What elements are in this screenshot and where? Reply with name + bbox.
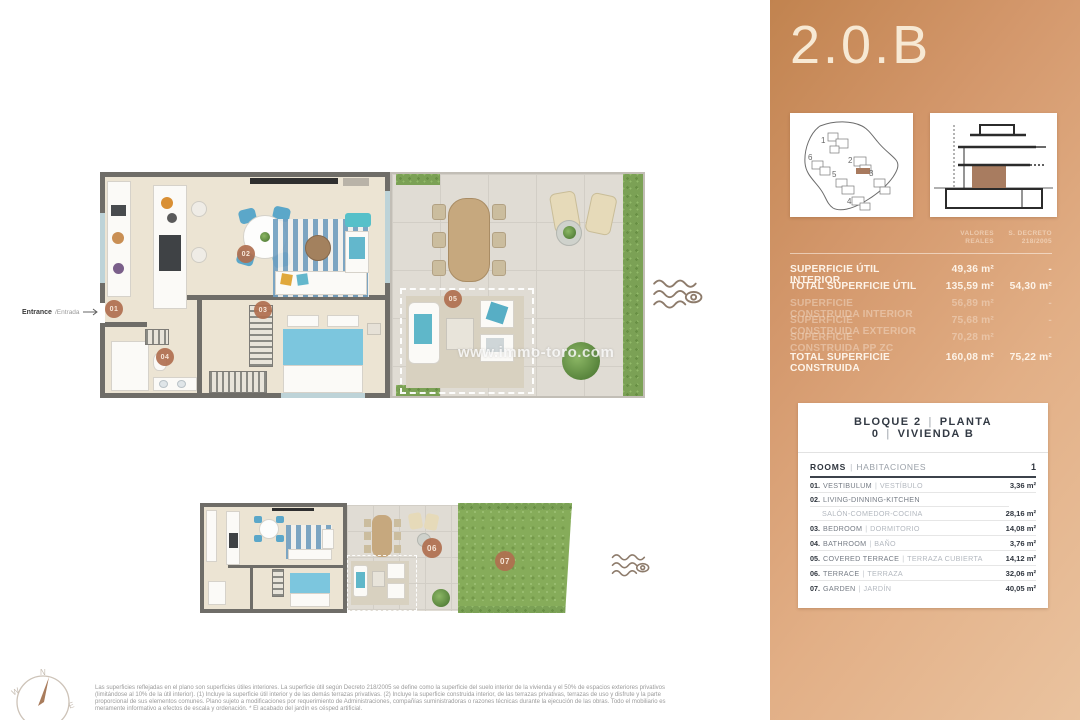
nightstand <box>367 323 381 335</box>
plate <box>191 247 207 263</box>
mini-armchair <box>387 563 405 579</box>
entrance-label-es: /Entrada <box>55 309 80 316</box>
col-header-valores: VALORESREALES <box>924 230 994 246</box>
site-block-number: 3 <box>869 169 874 178</box>
mini-chair <box>364 532 371 540</box>
mini-lounge <box>408 512 424 530</box>
bath-shelf <box>145 329 169 345</box>
sea-waves-icon <box>651 275 703 311</box>
shower <box>111 341 149 391</box>
table-row: 01.VESTIBULUM|VESTÍBULO3,36 m² <box>810 478 1036 493</box>
kitchen-item <box>112 232 124 244</box>
site-block-number: 1 <box>821 136 826 145</box>
bed-base <box>283 365 363 393</box>
site-block-number: 5 <box>832 170 837 179</box>
basin <box>159 380 168 388</box>
outdoor-chair <box>492 260 506 276</box>
entrance-label-en: Entrance <box>22 309 52 316</box>
table-row: 02.LIVING-DINNING-KITCHEN SALÓN-COMEDOR-… <box>810 493 1036 521</box>
divider <box>790 253 1052 254</box>
mini-chair-blue <box>276 516 284 523</box>
rooms-count: 1 <box>1031 462 1036 472</box>
table-centerpiece <box>260 232 270 242</box>
table-row: 05.COVERED TERRACE|TERRAZA CUBIERTA14,12… <box>810 551 1036 566</box>
mini-chair <box>394 545 401 553</box>
mini-coffee-table <box>372 571 385 587</box>
surface-table: VALORESREALES S. DECRETO218/2005 SUPERFI… <box>790 230 1052 369</box>
overview-interior <box>200 503 347 613</box>
sofa-pillow <box>296 273 308 285</box>
highlighted-block <box>856 168 870 174</box>
room-list-card: BLOQUE 2|PLANTA 0|VIVIENDA B ROOMS | HAB… <box>798 403 1048 608</box>
bowl <box>161 197 173 209</box>
wardrobe <box>209 371 267 393</box>
mini-cushion <box>356 572 365 588</box>
mini-chair <box>394 532 401 540</box>
outdoor-chair <box>492 232 506 248</box>
unit-location-header: BLOQUE 2|PLANTA 0|VIVIENDA B <box>810 416 1036 440</box>
outdoor-chair <box>492 204 506 220</box>
site-block-number: 4 <box>847 197 852 206</box>
mini-chair <box>364 519 371 527</box>
room-badge-05: 05 <box>444 290 462 308</box>
col-header-decreto: S. DECRETO218/2005 <box>994 230 1052 246</box>
bowl <box>167 213 177 223</box>
entrance-label: Entrance/Entrada <box>22 308 99 316</box>
watermark: www.immo-toro.com <box>458 344 614 361</box>
mini-kitchen <box>206 510 217 562</box>
overview-terrace <box>347 505 458 611</box>
wall <box>250 565 253 609</box>
room-badge-06: 06 <box>422 538 442 558</box>
info-sidebar: 2.0.B 1 2 <box>770 0 1080 720</box>
tv <box>250 178 338 184</box>
outdoor-chair <box>432 232 446 248</box>
lounge-chair <box>584 192 618 237</box>
apartment-interior <box>100 172 390 398</box>
mini-chair-blue <box>276 535 284 542</box>
legal-disclaimer: Las superficies reflejadas en el plano s… <box>95 685 695 713</box>
mini-lounge <box>423 513 439 531</box>
cooktop <box>159 235 181 271</box>
room-badge-03: 03 <box>254 301 272 319</box>
mini-armchair <box>387 583 405 599</box>
table-row: SUPERFICIE ÚTIL INTERIOR49,36 m²- <box>790 264 1052 281</box>
mini-dining-table <box>372 515 392 557</box>
bedroom-window <box>281 393 365 398</box>
table-row: 07.GARDEN|JARDÍN40,05 m² <box>810 581 1036 596</box>
mini-wardrobe <box>272 569 284 597</box>
table-row: SUPERFICIE CONSTRUIDA EXTERIOR75,68 m²- <box>790 315 1052 332</box>
wall <box>197 295 202 393</box>
hedge-strip-top <box>396 174 440 185</box>
disclaimer-line: meramente informativo a efectos de escal… <box>95 706 695 713</box>
outdoor-chair <box>432 260 446 276</box>
mini-bed-blanket <box>290 573 330 593</box>
outdoor-chair <box>432 204 446 220</box>
section-diagram-thumbnail <box>930 113 1057 217</box>
room-badge-07: 07 <box>495 551 515 571</box>
plate <box>191 201 207 217</box>
chaise-cushion <box>349 237 365 259</box>
disclaimer-line: (limitándose al 10% de la útil interior)… <box>95 692 695 699</box>
table-row: SUPERFICIE CONSTRUIDA PP ZC70,28 m²- <box>790 332 1052 349</box>
mini-chair <box>364 545 371 553</box>
mini-chaise <box>322 529 334 549</box>
table-row: 04.BATHROOM|BAÑO3,76 m² <box>810 536 1036 551</box>
table-row: SUPERFICIE CONSTRUIDA INTERIOR56,89 m²- <box>790 298 1052 315</box>
site-block-number: 6 <box>808 153 813 162</box>
room-badge-02: 02 <box>237 245 255 263</box>
mini-bed-base <box>290 593 330 607</box>
table-row: TOTAL SUPERFICIE ÚTIL135,59 m²54,30 m² <box>790 281 1052 298</box>
wall <box>105 322 147 327</box>
plant <box>563 226 576 239</box>
media-console <box>343 178 369 186</box>
basin <box>177 380 186 388</box>
bed-blanket <box>283 329 363 365</box>
table-row: TOTAL SUPERFICIE CONSTRUIDA160,08 m²75,2… <box>790 352 1052 369</box>
table-row: 06.TERRACE|TERRAZA32,06 m² <box>810 566 1036 581</box>
sea-waves-icon-small <box>610 551 650 578</box>
bed-pillow <box>327 315 359 327</box>
mini-plant <box>432 589 450 607</box>
bed-pillow <box>287 315 319 327</box>
entrance-arrow-icon <box>83 308 99 316</box>
wall <box>228 565 343 568</box>
kitchen-sink <box>111 205 126 216</box>
overview-floor-plan: 06 07 <box>200 503 580 613</box>
garden-hedge-bottom <box>458 606 572 613</box>
terrace-area <box>390 172 645 398</box>
room-badge-04: 04 <box>156 348 174 366</box>
compass-w: W <box>10 686 21 698</box>
mini-chair <box>394 519 401 527</box>
sofa-pillow <box>280 273 293 286</box>
mini-cooktop <box>229 533 238 548</box>
coffee-table-round <box>305 235 331 261</box>
sliding-door <box>385 191 390 283</box>
disclaimer-line: proporcional de sus elementos comunes. P… <box>95 699 695 706</box>
main-floor-plan: 01 02 03 04 05 www.immo-toro.com <box>100 172 645 398</box>
highlighted-floor <box>972 165 1006 188</box>
kitchen-item <box>113 263 124 274</box>
compass-n: N <box>40 668 46 677</box>
site-plan-thumbnail: 1 2 3 4 5 6 <box>790 113 913 217</box>
rooms-header-row: ROOMS | HABITACIONES 1 <box>810 462 1036 478</box>
garden-area <box>458 503 572 613</box>
mini-tv <box>272 508 314 511</box>
table-row: 03.BEDROOM|DORMITORIO14,08 m² <box>810 521 1036 536</box>
unit-title: 2.0.B <box>790 14 931 76</box>
room-badge-01: 01 <box>105 300 123 318</box>
mini-chair-blue <box>254 516 262 523</box>
brochure-page: Entrance/Entrada <box>0 0 1080 720</box>
bench <box>345 213 371 227</box>
outdoor-dining-table <box>448 198 490 282</box>
disclaimer-line: Las superficies reflejadas en el plano s… <box>95 685 695 692</box>
site-block-number: 2 <box>848 156 853 165</box>
garden-hedge-top <box>458 503 572 510</box>
mini-chair-blue <box>254 535 262 542</box>
hedge-right <box>623 174 643 396</box>
window <box>100 213 105 283</box>
compass-icon: N W E <box>10 662 76 720</box>
divider <box>798 452 1048 453</box>
mini-sofa-living <box>288 549 332 560</box>
mini-shower <box>208 581 226 605</box>
sofa-cushion <box>414 314 432 344</box>
